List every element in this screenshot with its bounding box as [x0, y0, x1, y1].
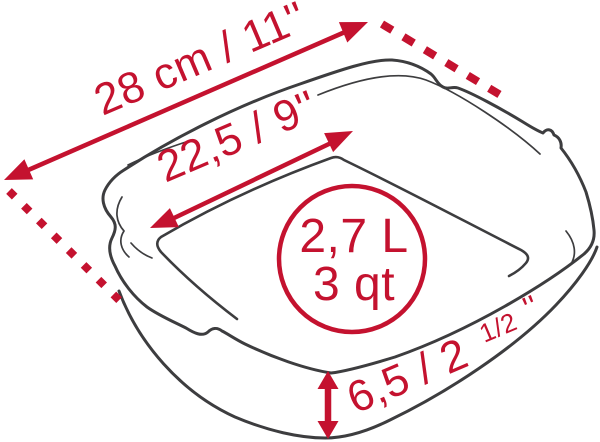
capacity-liters-label: 2,7 L — [299, 210, 408, 263]
baking-dish-dimension-diagram: 28 cm / 11'' 22,5 / 9'' 2,7 L 3 qt 6,5 /… — [0, 0, 600, 442]
inner-width-label: 22,5 / 9'' — [150, 81, 324, 192]
left-handle-accent — [117, 197, 129, 257]
outer-width-arrowhead-right — [339, 22, 368, 43]
rim-thickness-accent-right — [318, 76, 540, 154]
capacity-annotation: 2,7 L 3 qt — [279, 186, 425, 332]
capacity-quarts-label: 3 qt — [313, 258, 395, 311]
height-label-main: 6,5 / 2 — [340, 329, 475, 423]
inner-width-arrowhead-left — [150, 208, 179, 228]
outer-width-arrowhead-left — [4, 159, 33, 180]
left-corner-accent — [131, 243, 152, 258]
height-label-suffix: '' — [518, 288, 544, 326]
inner-width-arrowhead-right — [324, 131, 353, 152]
diagram-canvas: 28 cm / 11'' 22,5 / 9'' 2,7 L 3 qt 6,5 /… — [0, 0, 600, 442]
right-corner-accent — [566, 231, 574, 264]
